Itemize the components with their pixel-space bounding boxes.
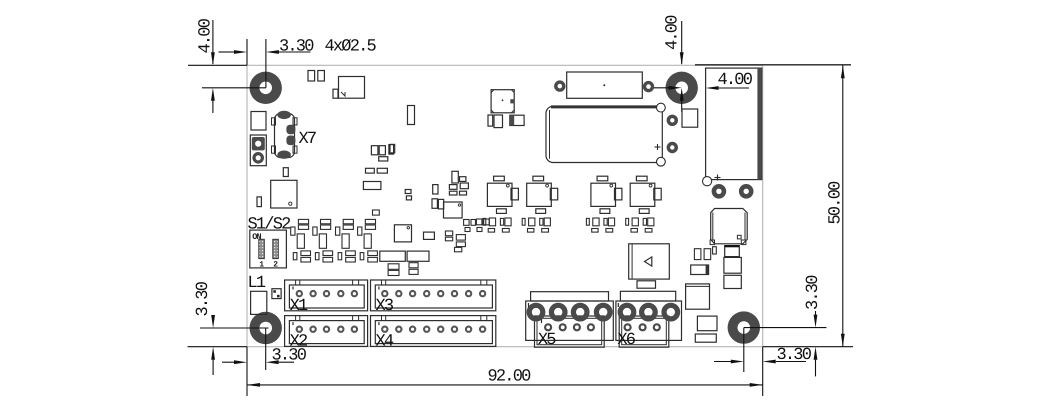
svg-text:1: 1	[259, 260, 264, 269]
svg-text:4.00: 4.00	[664, 15, 683, 50]
svg-text:X4: X4	[376, 333, 394, 352]
svg-text:X7: X7	[299, 130, 316, 149]
svg-text:X6: X6	[617, 331, 635, 350]
svg-text:X3: X3	[376, 297, 394, 316]
svg-text:4.00: 4.00	[197, 18, 216, 53]
svg-text:X1: X1	[290, 297, 308, 316]
svg-text:4.00: 4.00	[718, 71, 753, 90]
svg-text:L1: L1	[248, 274, 266, 293]
svg-text:3.30: 3.30	[194, 281, 213, 316]
svg-text:X2: X2	[290, 333, 307, 352]
svg-text:2: 2	[273, 260, 278, 269]
svg-text:4xØ2.5: 4xØ2.5	[325, 38, 377, 57]
svg-text:92.00: 92.00	[488, 368, 532, 387]
svg-text:3.30: 3.30	[777, 346, 812, 365]
svg-text:3.30: 3.30	[279, 38, 314, 57]
svg-text:50.00: 50.00	[827, 181, 846, 225]
svg-text:3.30: 3.30	[804, 275, 823, 310]
svg-text:X5: X5	[538, 331, 556, 350]
